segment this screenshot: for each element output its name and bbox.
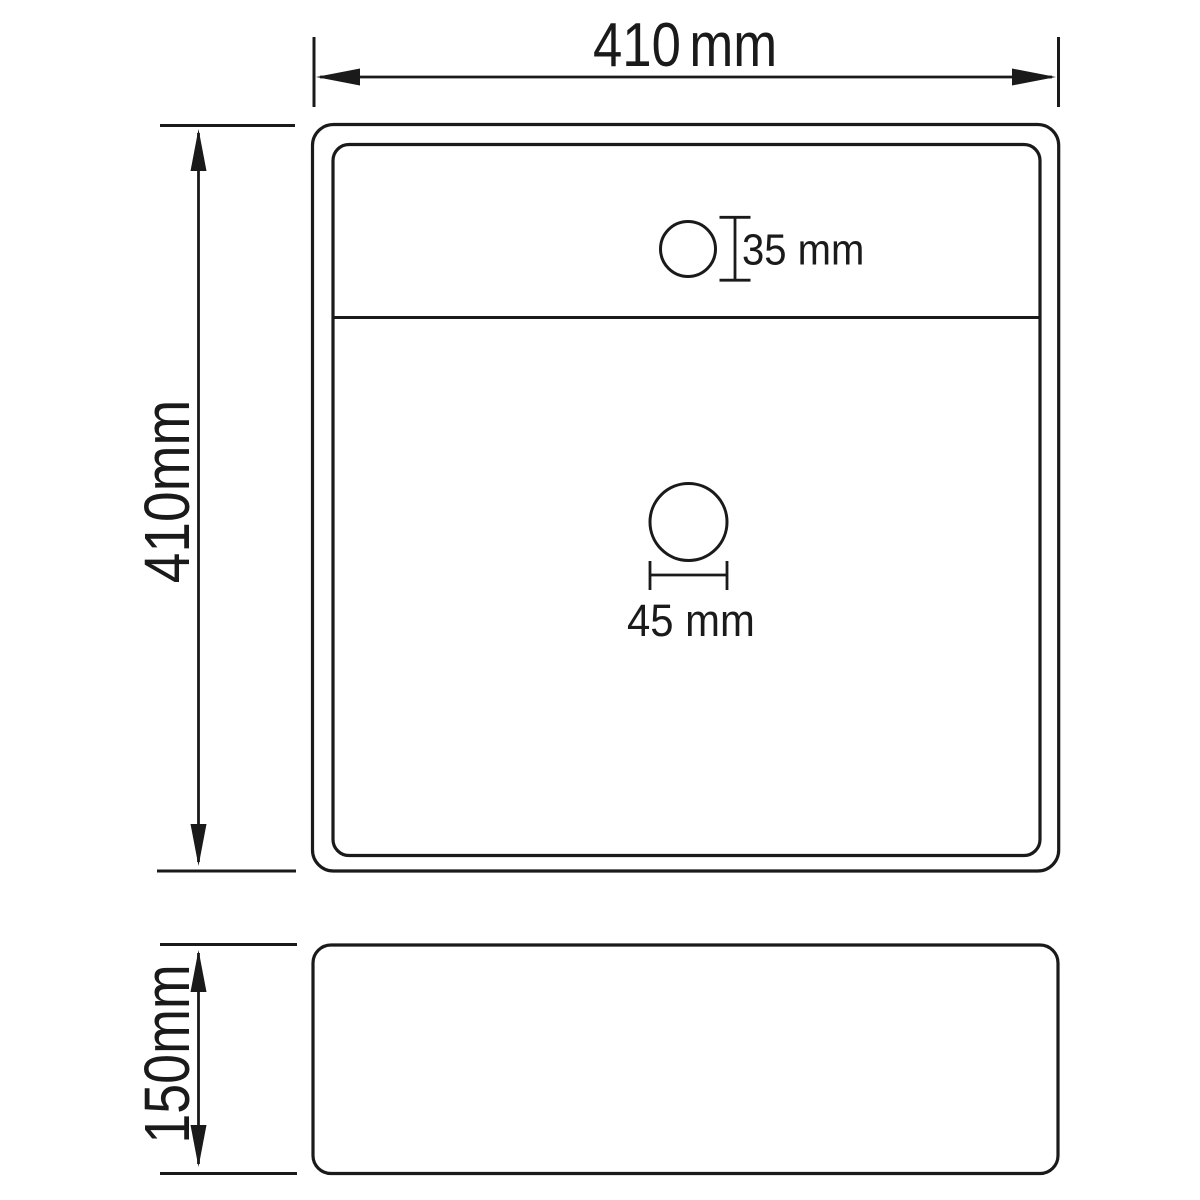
svg-text:150mm: 150mm	[131, 964, 204, 1143]
svg-text:35 mm: 35 mm	[742, 225, 864, 274]
svg-text:45 mm: 45 mm	[627, 597, 755, 647]
svg-text:410mm: 410mm	[131, 400, 203, 583]
